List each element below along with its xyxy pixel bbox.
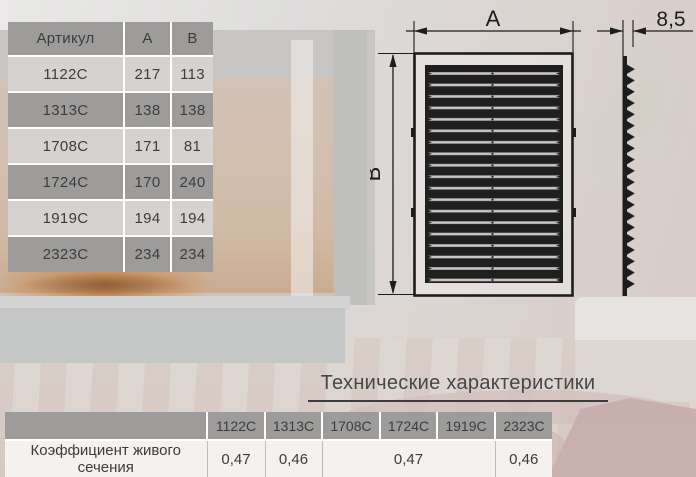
specs-header-row: 1122С 1313С 1708С 1724С 1919С 2323С (5, 412, 552, 440)
specs-column-header: 1122С (207, 412, 265, 440)
dimension-a-label: A (486, 6, 501, 31)
specs-column-header: 1313С (265, 412, 322, 440)
table-header-row: Артикул A B (8, 22, 213, 56)
fire-logs (15, 272, 195, 298)
a-cell: 194 (124, 200, 171, 236)
specs-value-row: Коэффициент живого сечения 0,47 0,46 0,4… (5, 440, 552, 477)
coefficient-cell: 0,46 (265, 440, 322, 477)
dimension-b: B (370, 54, 414, 295)
column-header-a: A (124, 22, 171, 56)
grille-front-view (411, 54, 576, 296)
specs-empty-header (5, 412, 207, 440)
coefficient-cell: 0,47 (207, 440, 265, 477)
coefficient-cell: 0,46 (495, 440, 552, 477)
fireplace-pillar (333, 30, 367, 305)
chimney-highlight (291, 40, 313, 305)
dimension-a: A (406, 6, 581, 52)
specs-column-header: 1724С (380, 412, 437, 440)
article-cell: 1313С (8, 92, 124, 128)
article-cell: 1708С (8, 128, 124, 164)
article-cell: 2323С (8, 236, 124, 272)
pillow-right (548, 398, 696, 477)
specs-table: 1122С 1313С 1708С 1724С 1919С 2323С Коэф… (5, 412, 552, 477)
grille-technical-drawing: A B (370, 0, 696, 310)
hearth-bench (0, 308, 345, 363)
b-cell: 234 (171, 236, 213, 272)
specs-row-label: Коэффициент живого сечения (5, 440, 207, 477)
table-row: 1708С 171 81 (8, 128, 213, 164)
hearth-top (0, 296, 350, 310)
article-cell: 1122С (8, 56, 124, 92)
side-plate (623, 56, 628, 296)
grille-louvers (425, 65, 563, 283)
a-cell: 217 (124, 56, 171, 92)
column-header-b: B (171, 22, 213, 56)
b-cell: 138 (171, 92, 213, 128)
specs-column-header: 1919С (437, 412, 495, 440)
column-header-article: Артикул (8, 22, 124, 56)
grille-side-view (623, 56, 637, 296)
specs-column-header: 2323С (495, 412, 552, 440)
table-row: 2323С 234 234 (8, 236, 213, 272)
b-cell: 81 (171, 128, 213, 164)
spec-sheet: Артикул A B 1122С 217 113 1313С 138 138 … (0, 0, 696, 477)
a-cell: 138 (124, 92, 171, 128)
a-cell: 171 (124, 128, 171, 164)
table-row: 1919С 194 194 (8, 200, 213, 236)
table-row: 1122С 217 113 (8, 56, 213, 92)
a-cell: 170 (124, 164, 171, 200)
coefficient-cell: 0,47 (322, 440, 495, 477)
specs-column-header: 1708С (322, 412, 380, 440)
dimension-thickness-label: 8,5 (656, 8, 685, 31)
article-cell: 1724С (8, 164, 124, 200)
b-cell: 194 (171, 200, 213, 236)
side-louver-teeth (627, 64, 636, 290)
a-cell: 234 (124, 236, 171, 272)
b-cell: 240 (171, 164, 213, 200)
table-row: 1724С 170 240 (8, 164, 213, 200)
b-cell: 113 (171, 56, 213, 92)
dimension-b-label: B (370, 167, 385, 182)
table-row: 1313С 138 138 (8, 92, 213, 128)
dimensions-table: Артикул A B 1122С 217 113 1313С 138 138 … (8, 22, 213, 272)
specs-title: Технические характеристики (308, 371, 608, 402)
dimension-thickness: 8,5 (597, 8, 693, 56)
article-cell: 1919С (8, 200, 124, 236)
